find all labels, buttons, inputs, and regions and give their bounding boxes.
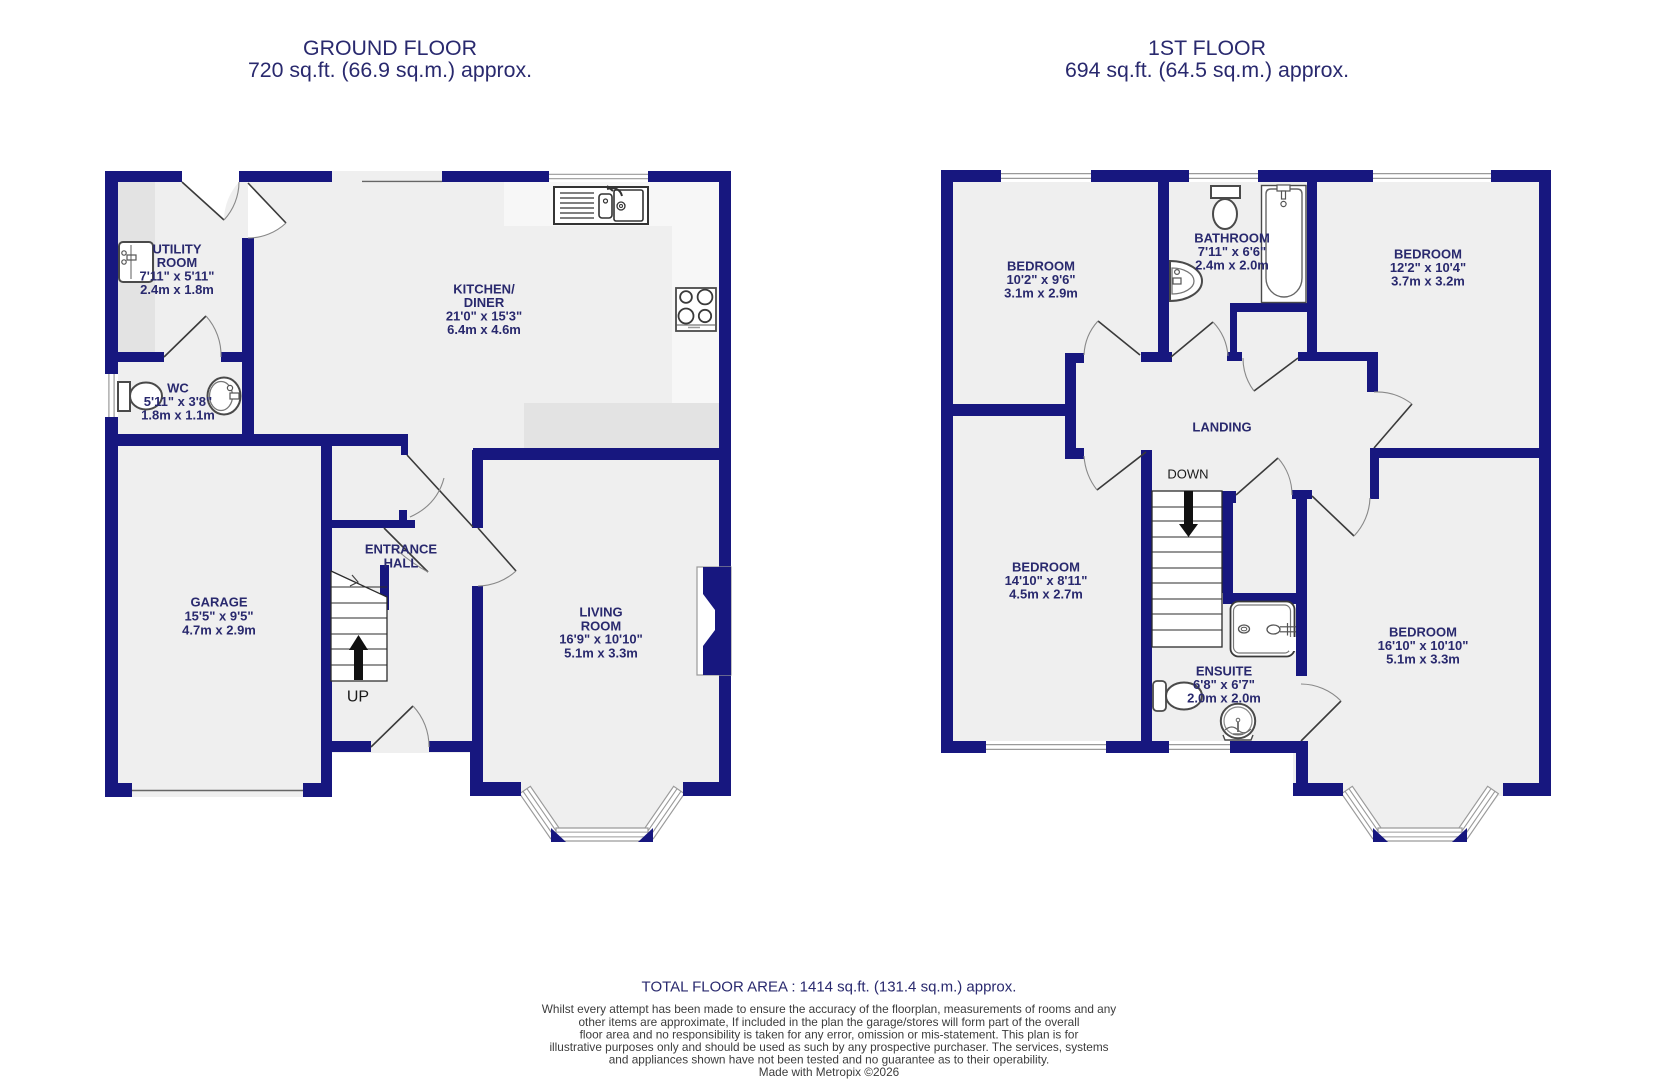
svg-text:1ST FLOOR: 1ST FLOOR <box>1148 36 1266 60</box>
svg-text:DOWN: DOWN <box>1167 467 1208 482</box>
svg-text:6.4m x 4.6m: 6.4m x 4.6m <box>447 322 521 337</box>
svg-text:4.7m x 2.9m: 4.7m x 2.9m <box>182 623 256 638</box>
svg-text:GARAGE: GARAGE <box>190 595 247 610</box>
svg-text:1.8m x 1.1m: 1.8m x 1.1m <box>141 408 215 423</box>
svg-text:2.4m x 2.0m: 2.4m x 2.0m <box>1195 258 1269 273</box>
svg-text:TOTAL FLOOR AREA : 1414 sq.ft.: TOTAL FLOOR AREA : 1414 sq.ft. (131.4 sq… <box>642 979 1017 996</box>
svg-text:2.4m x 1.8m: 2.4m x 1.8m <box>140 282 214 297</box>
svg-text:2.0m x 2.0m: 2.0m x 2.0m <box>1187 691 1261 706</box>
svg-text:5.1m x 3.3m: 5.1m x 3.3m <box>1386 652 1460 667</box>
svg-text:4.5m x 2.7m: 4.5m x 2.7m <box>1009 587 1083 602</box>
svg-text:LANDING: LANDING <box>1192 420 1251 435</box>
svg-text:LIVING: LIVING <box>579 605 622 620</box>
svg-text:HALL: HALL <box>384 556 419 571</box>
svg-text:5.1m x 3.3m: 5.1m x 3.3m <box>564 646 638 661</box>
svg-text:3.1m x 2.9m: 3.1m x 2.9m <box>1004 286 1078 301</box>
svg-text:720 sq.ft. (66.9 sq.m.) approx: 720 sq.ft. (66.9 sq.m.) approx. <box>248 58 532 82</box>
svg-text:GROUND FLOOR: GROUND FLOOR <box>303 36 477 60</box>
svg-text:3.7m x 3.2m: 3.7m x 3.2m <box>1391 274 1465 289</box>
svg-text:694 sq.ft. (64.5 sq.m.) approx: 694 sq.ft. (64.5 sq.m.) approx. <box>1065 58 1349 82</box>
svg-text:UP: UP <box>347 689 369 706</box>
svg-text:16'9" x 10'10": 16'9" x 10'10" <box>559 632 643 647</box>
svg-text:ENTRANCE: ENTRANCE <box>365 542 438 557</box>
svg-text:15'5" x 9'5": 15'5" x 9'5" <box>184 609 253 624</box>
svg-text:Whilst every attempt has been: Whilst every attempt has been made to en… <box>542 1002 1117 1016</box>
svg-text:Made with Metropix ©2026: Made with Metropix ©2026 <box>759 1065 900 1079</box>
